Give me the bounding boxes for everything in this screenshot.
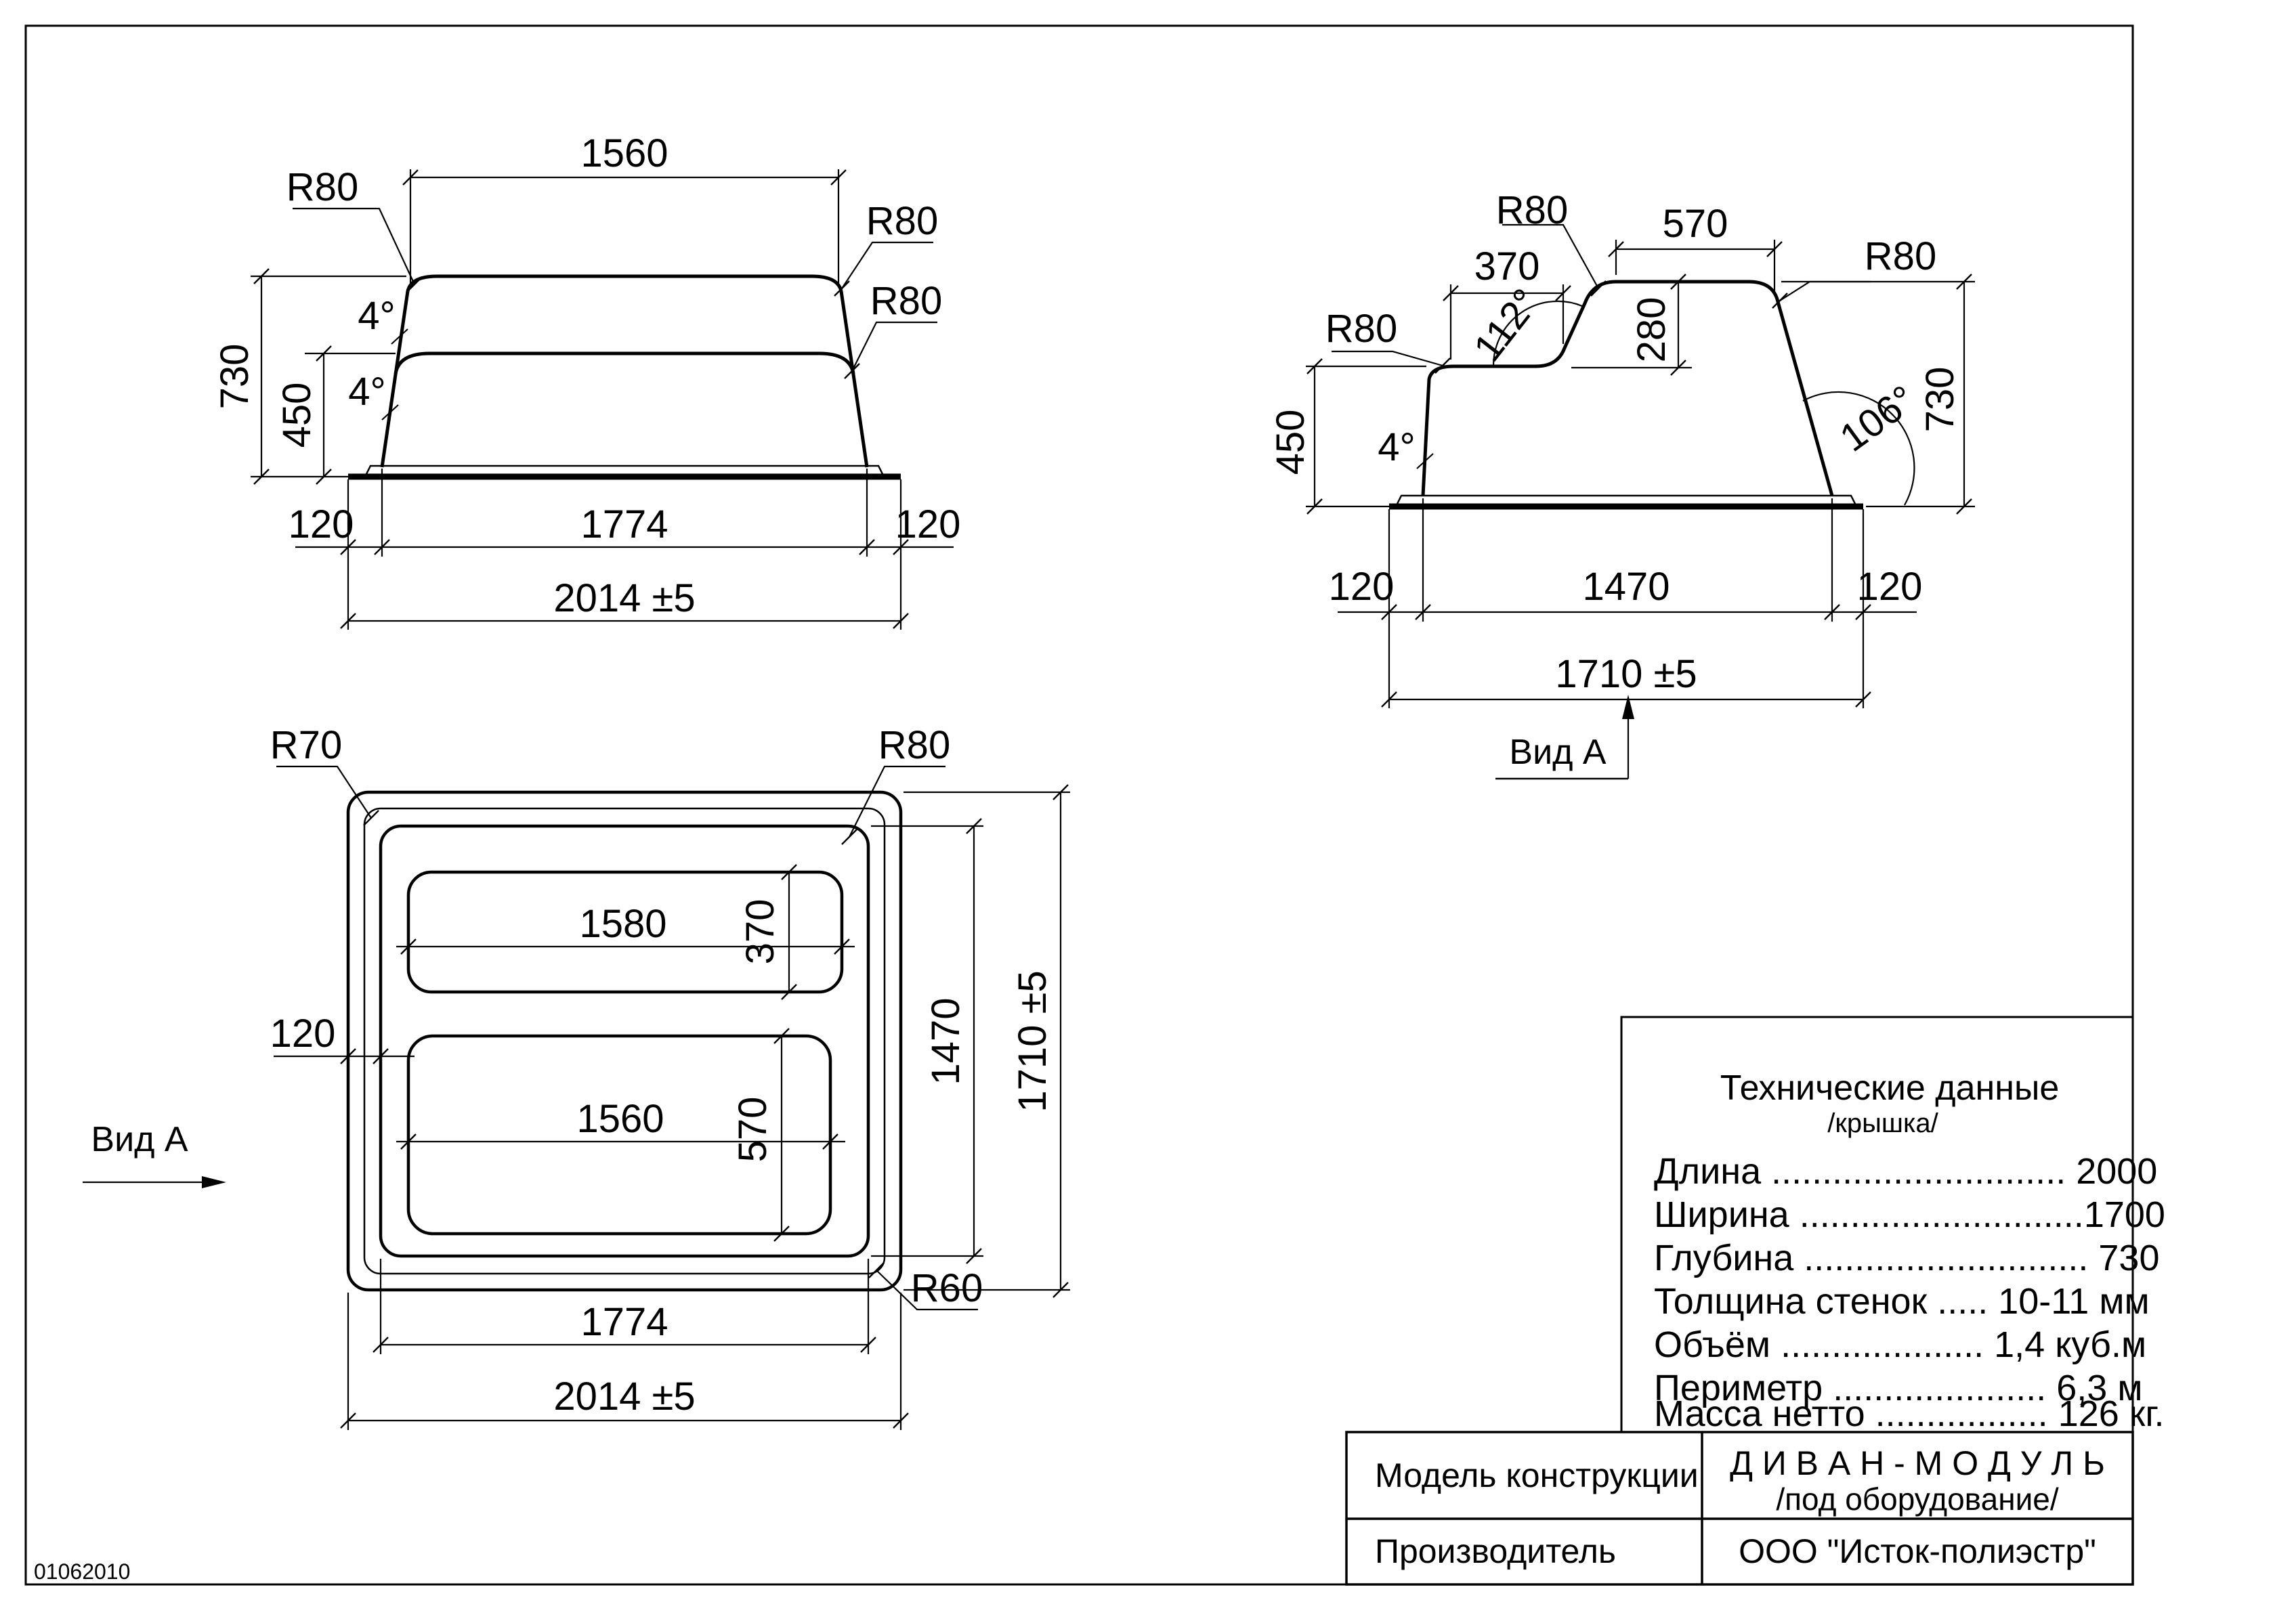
tech-row-net-mass: Масса нетто ................. 126 кг.: [1654, 1393, 2165, 1434]
view-direction-right-arrow-icon: [202, 1176, 226, 1188]
side-angle-wall-label: 4°: [1378, 425, 1415, 469]
plan-dim-body-label: 1774: [580, 1300, 668, 1344]
plan-view-marker: Вид А: [83, 1120, 226, 1188]
plan-radius-mid-label: R60: [911, 1266, 983, 1310]
plan-slot-bottom-width-label: 1560: [576, 1097, 664, 1141]
plan-dim-flange-label: 120: [270, 1012, 336, 1056]
tech-row-width: Ширина ............................1700: [1654, 1194, 2165, 1235]
side-radius-right-label: R80: [1865, 234, 1936, 278]
side-dim-height-lower-label: 450: [1269, 410, 1313, 475]
title-block-manufacturer-value: ООО "Исток-полиэстр": [1739, 1532, 2096, 1570]
drawing-sheet: 1560 R80 R80 R80 4° 4° 730 450 120 1774 …: [0, 0, 2296, 1600]
front-dim-flange-right-label: 120: [895, 502, 961, 546]
side-radius-seat-label: R80: [1325, 307, 1397, 351]
side-dim-overall-label: 1710 ±5: [1555, 652, 1697, 696]
plan-dim-ticks: [341, 785, 1068, 1428]
tech-row-wall-thickness: Толщина стенок ..... 10-11 мм: [1654, 1281, 2150, 1322]
plan-outer-rect: [348, 792, 901, 1290]
front-dim-height-label: 730: [213, 344, 257, 410]
side-view: R80 570 370 R80 R80 112° 280 730 450 4° …: [1269, 188, 1975, 779]
plan-dim-inner-height-label: 1470: [924, 997, 968, 1085]
drawing-canvas: 1560 R80 R80 R80 4° 4° 730 450 120 1774 …: [0, 0, 2296, 1600]
title-block-model-note: /под оборудование/: [1776, 1482, 2059, 1517]
plan-dim-overall-label: 2014 ±5: [553, 1375, 695, 1419]
plan-middle-rect: [364, 808, 885, 1274]
side-dim-top-label: 570: [1663, 202, 1728, 246]
tech-row-depth: Глубина ............................ 730: [1654, 1238, 2159, 1278]
front-dim-top-label: 1560: [580, 131, 668, 175]
side-view-marker: Вид А: [1495, 695, 1634, 779]
drawing-code: 01062010: [34, 1559, 130, 1584]
side-radius-top-label: R80: [1496, 188, 1568, 232]
plan-slot-top-height-label: 370: [738, 899, 782, 965]
side-dim-seat-label: 370: [1474, 244, 1540, 288]
front-radius-mid-right-label: R80: [870, 279, 942, 323]
tech-box-title: Технические данные: [1720, 1068, 2060, 1108]
plan-radius-outer-label: R70: [270, 723, 342, 767]
side-dim-back-height-label: 280: [1630, 297, 1674, 363]
tech-data-box: Технические данные /крышка/ Длина ......…: [1621, 1017, 2165, 1434]
front-radius-top-left-label: R80: [286, 165, 358, 209]
plan-slot-bottom-height-label: 570: [731, 1097, 775, 1163]
side-dim-height-label: 730: [1918, 367, 1962, 433]
view-direction-up-arrow-icon: [1622, 695, 1634, 719]
tech-row-volume: Объём .................... 1,4 куб.м: [1654, 1324, 2146, 1365]
side-dim-body-label: 1470: [1582, 565, 1670, 609]
tech-box-subtitle: /крышка/: [1827, 1108, 1938, 1138]
front-dim-overall-label: 2014 ±5: [553, 576, 695, 620]
title-block: Модель конструкции Д И В А Н - М О Д У Л…: [1346, 1432, 2133, 1584]
front-dim-flange-left-label: 120: [289, 502, 354, 546]
side-dim-flange-right-label: 120: [1857, 565, 1923, 609]
plan-view-label: Вид А: [91, 1120, 188, 1159]
front-body-outline: [382, 276, 867, 467]
plan-radius-inner-label: R80: [878, 723, 950, 767]
front-dim-body-label: 1774: [580, 502, 668, 546]
plan-dim-overall-height-label: 1710 ±5: [1011, 970, 1055, 1112]
front-angle-lower-label: 4°: [348, 370, 385, 414]
side-view-label: Вид А: [1509, 733, 1607, 772]
front-mid-edge: [396, 353, 853, 374]
side-body-outline: [1423, 282, 1832, 496]
tech-row-length: Длина ............................. 2000: [1654, 1151, 2157, 1192]
title-block-model-name: Д И В А Н - М О Д У Л Ь: [1730, 1444, 2105, 1482]
title-block-model-label: Модель конструкции: [1375, 1456, 1699, 1494]
side-angle-front-label: 106°: [1832, 377, 1923, 460]
plan-dim-lines: [274, 766, 1070, 1430]
front-dim-height-lower-label: 450: [275, 383, 319, 448]
side-dim-flange-left-label: 120: [1329, 565, 1395, 609]
front-radius-top-right-label: R80: [866, 199, 938, 243]
title-block-manufacturer-label: Производитель: [1375, 1532, 1616, 1570]
front-angle-upper-label: 4°: [358, 294, 395, 338]
plan-view: R70 R80 1580 370 1560 570 120 1470 1710 …: [83, 723, 1070, 1430]
plan-inner-rect: [381, 826, 868, 1256]
plan-slot-top-width-label: 1580: [579, 902, 666, 946]
front-view: 1560 R80 R80 R80 4° 4° 730 450 120 1774 …: [213, 131, 960, 630]
